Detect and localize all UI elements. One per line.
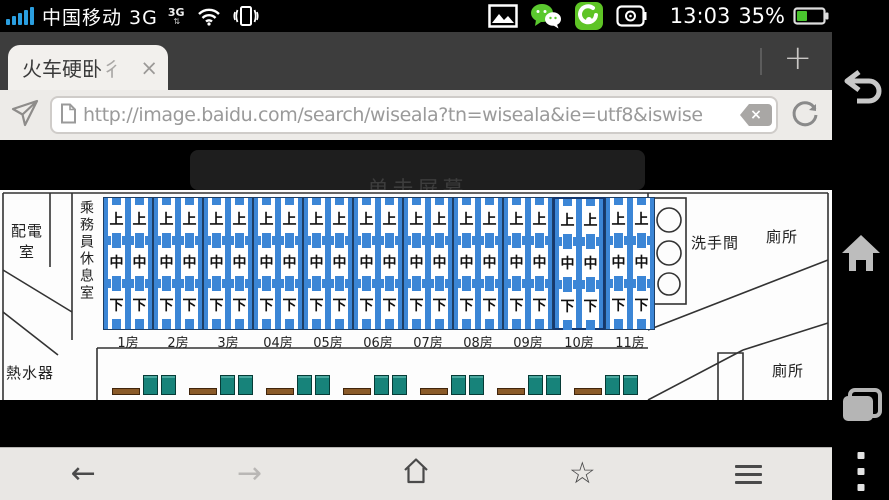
- berth-connector: [108, 233, 125, 248]
- corridor-table: [112, 388, 140, 395]
- berth-label: 中: [381, 248, 398, 276]
- folding-seat: [374, 375, 389, 395]
- berth-label: 上: [158, 205, 175, 233]
- berth-stack: 上中下: [108, 198, 125, 329]
- berth-label: 下: [458, 291, 475, 319]
- seat-group: [266, 375, 330, 395]
- berth-connector: [258, 233, 275, 248]
- tap-hint-text: 单击屏幕: [190, 173, 645, 190]
- berth-connector: [408, 276, 425, 291]
- berth-compartment: 上中下上中下: [253, 197, 303, 330]
- phone-screen: 中国移动 3G 3G ⇅: [0, 0, 889, 500]
- tabbar-divider: [760, 48, 762, 75]
- berth-connector: [431, 233, 448, 248]
- berth-stack: 上中下: [258, 198, 275, 329]
- berth-connector: [135, 319, 144, 329]
- compartment-label: 3房: [203, 330, 253, 347]
- berth-stack: 上中下: [308, 198, 325, 329]
- berth-label: 下: [281, 291, 298, 319]
- berth-label: 中: [331, 248, 348, 276]
- berth-stack: 上中下: [208, 198, 225, 329]
- folding-seat: [238, 375, 253, 395]
- berth-label: 上: [458, 205, 475, 233]
- berth-label: 上: [208, 205, 225, 233]
- toilet-upper-label: 廁所: [766, 226, 798, 247]
- corridor-table: [574, 388, 602, 395]
- berth-connector: [559, 277, 576, 292]
- tap-hint-overlay[interactable]: 单击屏幕: [190, 150, 645, 190]
- folding-seat: [220, 375, 235, 395]
- berth-connector: [335, 198, 344, 205]
- corridor-table: [420, 388, 448, 395]
- berth-label: 中: [508, 248, 525, 276]
- berth-label: 上: [231, 205, 248, 233]
- berth-label: 下: [481, 291, 498, 319]
- berth-connector: [308, 233, 325, 248]
- berth-stack: 上中下: [181, 198, 198, 329]
- system-nav-bar: [832, 0, 889, 500]
- folding-seat: [143, 375, 158, 395]
- toilet-lower-label: 廁所: [772, 360, 804, 381]
- berth-connector: [637, 319, 646, 329]
- berth-connector: [381, 233, 398, 248]
- berth-label: 上: [108, 205, 125, 233]
- berth-connector: [485, 198, 494, 205]
- berth-connector: [412, 319, 421, 329]
- berth-connector: [508, 233, 525, 248]
- berth-connector: [331, 233, 348, 248]
- berth-compartment: 上中下上中下: [503, 197, 553, 330]
- berth-connector: [131, 233, 148, 248]
- mobile-data-icon: 3G ⇅: [168, 7, 185, 26]
- berth-connector: [481, 276, 498, 291]
- berth-label: 中: [481, 248, 498, 276]
- berth-connector: [158, 233, 175, 248]
- compartment: 上中下上中下04房: [253, 197, 303, 347]
- berth-stack: 上中下: [582, 199, 599, 328]
- berth-connector: [610, 276, 627, 291]
- berth-connector: [637, 198, 646, 205]
- berth-connector: [431, 276, 448, 291]
- berth-connector: [285, 319, 294, 329]
- folding-seat: [605, 375, 620, 395]
- berth-label: 下: [582, 292, 599, 320]
- wifi-icon: [197, 6, 221, 26]
- tab-title: 火车硬卧: [22, 53, 102, 82]
- berth-label: 下: [531, 291, 548, 319]
- berth-label: 下: [131, 291, 148, 319]
- berth-stack: 上中下: [358, 198, 375, 329]
- folding-seat: [623, 375, 638, 395]
- berth-connector: [208, 276, 225, 291]
- berth-stack: 上中下: [633, 198, 650, 329]
- berth-connector: [385, 198, 394, 205]
- berth-connector: [458, 276, 475, 291]
- screenshot-icon: [616, 5, 648, 27]
- berth-connector: [162, 319, 171, 329]
- berth-connector: [358, 276, 375, 291]
- overflow-menu-dots[interactable]: [857, 452, 864, 491]
- berth-connector: [258, 276, 275, 291]
- berth-connector: [135, 198, 144, 205]
- berth-compartment: 上中下上中下: [303, 197, 353, 330]
- berth-label: 上: [481, 205, 498, 233]
- berth-label: 下: [181, 291, 198, 319]
- back-button[interactable]: ←: [53, 459, 113, 489]
- berth-connector: [563, 199, 572, 206]
- folding-seat: [469, 375, 484, 395]
- berth-connector: [362, 198, 371, 205]
- berth-label: 中: [408, 248, 425, 276]
- browser-toolbar: ← → ☆: [0, 447, 832, 500]
- share-send-icon[interactable]: [8, 96, 42, 134]
- page-icon: [60, 103, 77, 128]
- berth-stack: 上中下: [281, 198, 298, 329]
- berth-connector: [208, 233, 225, 248]
- berth-label: 上: [381, 205, 398, 233]
- gallery-notification-icon: [488, 4, 518, 28]
- battery-percent-label: 35%: [738, 4, 785, 28]
- berth-label: 下: [308, 291, 325, 319]
- berth-connector: [281, 276, 298, 291]
- clear-url-button[interactable]: ×: [740, 104, 772, 126]
- berth-connector: [112, 198, 121, 205]
- bookmark-star-button[interactable]: ☆: [552, 459, 612, 489]
- berth-stack: 上中下: [559, 199, 576, 328]
- status-bar: 中国移动 3G 3G ⇅: [0, 0, 889, 32]
- berth-connector: [112, 319, 121, 329]
- berth-connector: [512, 319, 521, 329]
- berth-connector: [512, 198, 521, 205]
- berth-compartment: 上中下上中下: [553, 197, 605, 330]
- corridor-table: [189, 388, 217, 395]
- berth-stack: 上中下: [158, 198, 175, 329]
- compartment-label: 05房: [303, 330, 353, 347]
- berth-label: 中: [610, 248, 627, 276]
- berth-compartments: 上中下上中下1房上中下上中下2房上中下上中下3房上中下上中下04房上中下上中下0…: [103, 197, 648, 347]
- berth-label: 上: [131, 205, 148, 233]
- berth-label: 中: [281, 248, 298, 276]
- berth-label: 中: [231, 248, 248, 276]
- wechat-icon: [530, 3, 562, 29]
- berth-connector: [531, 233, 548, 248]
- lock-app-icon: [574, 1, 604, 31]
- browser-tab[interactable]: 火车硬卧 彳 ×: [8, 45, 168, 90]
- berth-label: 下: [633, 291, 650, 319]
- berth-label: 下: [108, 291, 125, 319]
- berth-connector: [535, 319, 544, 329]
- berth-connector: [181, 233, 198, 248]
- berth-connector: [435, 198, 444, 205]
- folding-seat: [392, 375, 407, 395]
- compartment-label: 08房: [453, 330, 503, 347]
- berth-connector: [412, 198, 421, 205]
- berth-label: 下: [610, 291, 627, 319]
- berth-connector: [563, 320, 572, 330]
- berth-label: 下: [158, 291, 175, 319]
- berth-label: 下: [208, 291, 225, 319]
- corridor-seats-row: [112, 375, 638, 395]
- berth-label: 中: [431, 248, 448, 276]
- power-room-label: 配電室: [5, 220, 49, 262]
- compartment-label: 07房: [403, 330, 453, 347]
- berth-label: 中: [131, 248, 148, 276]
- berth-label: 中: [358, 248, 375, 276]
- berth-label: 上: [633, 205, 650, 233]
- berth-connector: [212, 198, 221, 205]
- berth-label: 下: [431, 291, 448, 319]
- compartment-label: 09房: [503, 330, 553, 347]
- berth-compartment: 上中下上中下: [103, 197, 153, 330]
- berth-compartment: 上中下上中下: [153, 197, 203, 330]
- berth-stack: 上中下: [610, 198, 627, 329]
- seat-group: [112, 375, 176, 395]
- berth-connector: [586, 320, 595, 330]
- system-home-icon[interactable]: [840, 232, 882, 278]
- berth-connector: [108, 276, 125, 291]
- berth-label: 中: [181, 248, 198, 276]
- berth-connector: [231, 276, 248, 291]
- berth-label: 下: [331, 291, 348, 319]
- berth-connector: [435, 319, 444, 329]
- berth-label: 上: [610, 205, 627, 233]
- seat-group: [420, 375, 484, 395]
- berth-stack: 上中下: [231, 198, 248, 329]
- berth-label: 下: [381, 291, 398, 319]
- berth-label: 上: [559, 206, 576, 234]
- berth-connector: [262, 198, 271, 205]
- berth-connector: [508, 276, 525, 291]
- berth-stack: 上中下: [481, 198, 498, 329]
- berth-connector: [362, 319, 371, 329]
- folding-seat: [315, 375, 330, 395]
- compartment: 上中下上中下05房: [303, 197, 353, 347]
- berth-connector: [308, 276, 325, 291]
- berth-connector: [335, 319, 344, 329]
- corridor-table: [343, 388, 371, 395]
- compartment-label: 1房: [103, 330, 153, 347]
- berth-stack: 上中下: [331, 198, 348, 329]
- folding-seat: [161, 375, 176, 395]
- berth-connector: [331, 276, 348, 291]
- berth-label: 中: [258, 248, 275, 276]
- corridor-table: [266, 388, 294, 395]
- berth-connector: [582, 277, 599, 292]
- berth-stack: 上中下: [458, 198, 475, 329]
- compartment-label: 2房: [153, 330, 203, 347]
- corridor-table: [497, 388, 525, 395]
- berth-connector: [559, 234, 576, 249]
- berth-connector: [212, 319, 221, 329]
- berth-label: 下: [408, 291, 425, 319]
- tab-title-clipped: 彳: [102, 53, 122, 82]
- berth-label: 上: [308, 205, 325, 233]
- berth-stack: 上中下: [131, 198, 148, 329]
- berth-connector: [531, 276, 548, 291]
- system-recents-icon[interactable]: [840, 388, 882, 428]
- berth-connector: [462, 198, 471, 205]
- berth-label: 下: [508, 291, 525, 319]
- compartment: 上中下上中下2房: [153, 197, 203, 347]
- berth-compartment: 上中下上中下: [453, 197, 503, 330]
- berth-stack: 上中下: [381, 198, 398, 329]
- berth-connector: [610, 233, 627, 248]
- berth-label: 上: [258, 205, 275, 233]
- forward-button[interactable]: →: [220, 459, 280, 489]
- compartment-label: 10房: [553, 330, 605, 347]
- berth-label: 中: [559, 249, 576, 277]
- berth-connector: [586, 199, 595, 206]
- berth-connector: [131, 276, 148, 291]
- berth-label: 上: [331, 205, 348, 233]
- seat-group: [189, 375, 253, 395]
- berth-label: 上: [431, 205, 448, 233]
- berth-connector: [633, 233, 650, 248]
- berth-label: 上: [358, 205, 375, 233]
- berth-connector: [485, 319, 494, 329]
- compartment: 上中下上中下08房: [453, 197, 503, 347]
- berth-label: 上: [582, 206, 599, 234]
- berth-connector: [408, 233, 425, 248]
- seat-group: [574, 375, 638, 395]
- berth-label: 上: [531, 205, 548, 233]
- url-text: http://image.baidu.com/search/wiseala?tn…: [83, 104, 740, 126]
- system-back-icon[interactable]: [839, 68, 883, 114]
- home-button[interactable]: [386, 456, 446, 492]
- tab-close-icon[interactable]: ×: [140, 56, 158, 80]
- crew-room-label: 乘務員休息室: [76, 200, 96, 328]
- berth-stack: 上中下: [431, 198, 448, 329]
- berth-label: 下: [559, 292, 576, 320]
- berth-connector: [312, 198, 321, 205]
- berth-label: 下: [231, 291, 248, 319]
- new-tab-button[interactable]: +: [784, 38, 813, 78]
- address-input[interactable]: http://image.baidu.com/search/wiseala?tn…: [50, 96, 778, 134]
- berth-connector: [262, 319, 271, 329]
- seat-group: [343, 375, 407, 395]
- berth-connector: [614, 319, 623, 329]
- berth-label: 上: [281, 205, 298, 233]
- berth-label: 下: [258, 291, 275, 319]
- berth-connector: [162, 198, 171, 205]
- tab-bar: 火车硬卧 彳 × +: [0, 32, 832, 90]
- compartment: 上中下上中下06房: [353, 197, 403, 347]
- berth-connector: [458, 233, 475, 248]
- berth-connector: [158, 276, 175, 291]
- berth-connector: [582, 234, 599, 249]
- compartment: 上中下上中下3房: [203, 197, 253, 347]
- signal-strength-icon: [6, 7, 34, 25]
- berth-label: 中: [633, 248, 650, 276]
- berth-connector: [281, 233, 298, 248]
- berth-label: 中: [108, 248, 125, 276]
- washroom-label: 洗手間: [691, 232, 739, 253]
- berth-stack: 上中下: [508, 198, 525, 329]
- refresh-button[interactable]: [788, 96, 822, 134]
- berth-connector: [285, 198, 294, 205]
- berth-connector: [181, 276, 198, 291]
- compartment: 上中下上中下07房: [403, 197, 453, 347]
- berth-connector: [633, 276, 650, 291]
- water-heater-label: 熱水器: [5, 362, 55, 383]
- berth-label: 中: [308, 248, 325, 276]
- berth-compartment: 上中下上中下: [203, 197, 253, 330]
- berth-connector: [535, 198, 544, 205]
- folding-seat: [528, 375, 543, 395]
- berth-connector: [235, 319, 244, 329]
- berth-connector: [385, 319, 394, 329]
- berth-connector: [231, 233, 248, 248]
- berth-compartment: 上中下上中下: [605, 197, 655, 330]
- berth-stack: 上中下: [531, 198, 548, 329]
- compartment: 上中下上中下09房: [503, 197, 553, 347]
- berth-compartment: 上中下上中下: [403, 197, 453, 330]
- folding-seat: [451, 375, 466, 395]
- browser-window: 火车硬卧 彳 × + http://image.baidu: [0, 32, 832, 500]
- compartment: 上中下上中下11房: [605, 197, 655, 347]
- berth-connector: [185, 319, 194, 329]
- compartment-label: 11房: [605, 330, 655, 347]
- vibrate-icon: [233, 5, 259, 27]
- berth-label: 中: [208, 248, 225, 276]
- page-content[interactable]: 单击屏幕: [0, 140, 832, 447]
- carrier-label: 中国移动 3G: [42, 3, 158, 30]
- battery-icon: [793, 7, 829, 25]
- berth-connector: [381, 276, 398, 291]
- berth-label: 上: [408, 205, 425, 233]
- url-bar: http://image.baidu.com/search/wiseala?tn…: [0, 90, 832, 140]
- berth-connector: [614, 198, 623, 205]
- berth-label: 中: [531, 248, 548, 276]
- menu-button[interactable]: [719, 465, 779, 484]
- folding-seat: [297, 375, 312, 395]
- berth-connector: [462, 319, 471, 329]
- berth-connector: [235, 198, 244, 205]
- compartment-label: 04房: [253, 330, 303, 347]
- berth-label: 上: [181, 205, 198, 233]
- berth-connector: [358, 233, 375, 248]
- berth-label: 上: [508, 205, 525, 233]
- train-sleeper-diagram[interactable]: 配電室 乘務員休息室 熱水器 洗手間 廁所 廁所 上中下上中下1房上中下上中下2…: [0, 190, 832, 400]
- berth-label: 中: [158, 248, 175, 276]
- compartment: 上中下上中下1房: [103, 197, 153, 347]
- seat-group: [497, 375, 561, 395]
- berth-label: 中: [582, 249, 599, 277]
- compartment-label: 06房: [353, 330, 403, 347]
- clock-label: 13:03: [670, 4, 731, 28]
- berth-compartment: 上中下上中下: [353, 197, 403, 330]
- berth-connector: [481, 233, 498, 248]
- berth-label: 下: [358, 291, 375, 319]
- compartment: 上中下上中下10房: [553, 197, 605, 347]
- berth-connector: [312, 319, 321, 329]
- folding-seat: [546, 375, 561, 395]
- berth-stack: 上中下: [408, 198, 425, 329]
- berth-label: 中: [458, 248, 475, 276]
- berth-connector: [185, 198, 194, 205]
